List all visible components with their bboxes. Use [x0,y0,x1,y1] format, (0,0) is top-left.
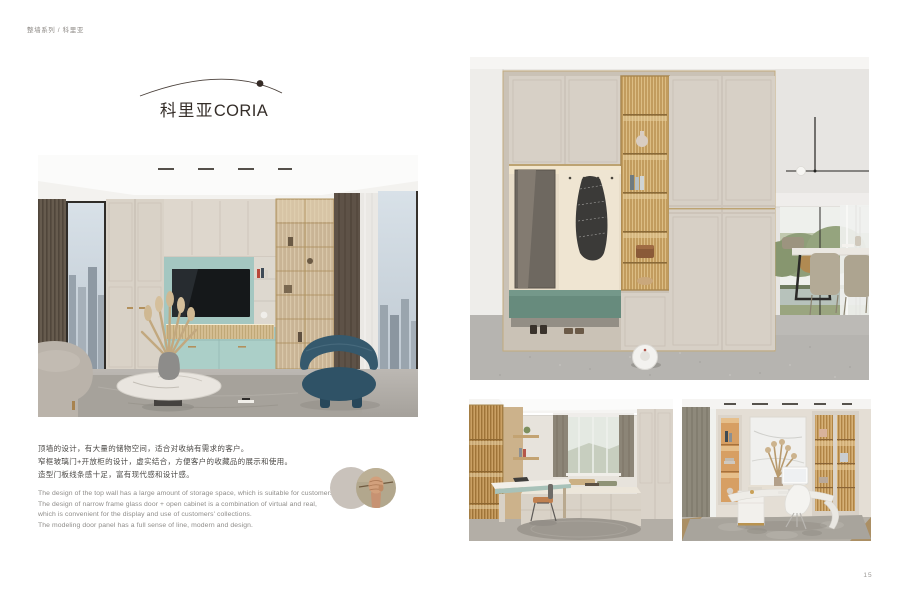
title-chinese: 科里亚 [160,102,214,120]
text-line: which is convenient for the display and … [38,510,393,521]
entryway-photo [470,57,869,380]
breadcrumb: 整墙系列 / 科里亚 [27,24,84,34]
detail-circle-hand-photo [356,468,396,508]
text-line: 窄框玻璃门+开放柜的设计，虚实结合，方便客户的收藏品的展示和使用。 [38,455,292,468]
text-line: The modeling door panel has a full sense… [38,521,393,532]
page-title: 科里亚CORIA [134,97,294,121]
office-photo [682,399,871,541]
title-english: CORIA [214,102,268,120]
intro-text-chinese: 顶墙的设计，有大量的储物空间，适合对收纳有需求的客户。 窄框玻璃门+开放柜的设计… [38,442,292,481]
arc-dot-icon [257,80,264,87]
text-line: 顶墙的设计，有大量的储物空间，适合对收纳有需求的客户。 [38,442,292,455]
text-line: 造型门板线条感十足，富有现代感和设计感。 [38,468,292,481]
page-number: 15 [856,572,880,579]
title-arc-icon [136,72,286,100]
study-photo [469,399,673,541]
catalog-page: 整墙系列 / 科里亚 科里亚CORIA [0,0,900,600]
living-room-photo [38,155,418,417]
